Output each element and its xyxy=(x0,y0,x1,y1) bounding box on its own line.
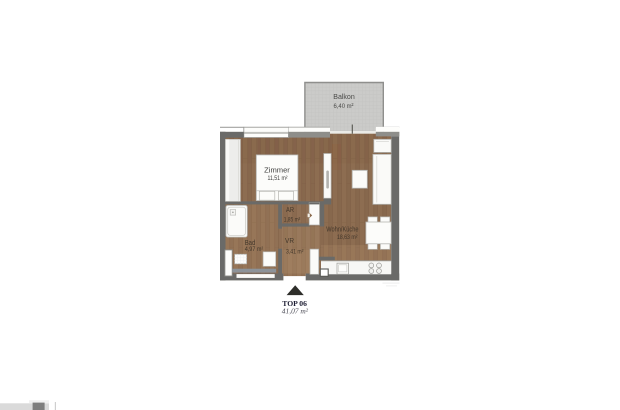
svg-text:Zimmer: Zimmer xyxy=(264,165,290,174)
svg-text:TOP 06: TOP 06 xyxy=(282,300,307,308)
svg-text:3,41 m²: 3,41 m² xyxy=(286,249,304,256)
svg-text:Balkon: Balkon xyxy=(333,92,355,101)
svg-text:41,07 m²: 41,07 m² xyxy=(282,308,309,315)
svg-text:6,40 m²: 6,40 m² xyxy=(334,103,355,110)
svg-text:4,97 m²: 4,97 m² xyxy=(245,246,264,253)
svg-text:VR: VR xyxy=(285,236,294,245)
svg-text:1,85 m²: 1,85 m² xyxy=(284,217,301,224)
svg-text:AR: AR xyxy=(286,205,294,214)
svg-text:11,51 m²: 11,51 m² xyxy=(268,175,289,182)
svg-text:18,63 m²: 18,63 m² xyxy=(337,234,358,241)
svg-text:Wohn/Küche: Wohn/Küche xyxy=(326,225,358,234)
